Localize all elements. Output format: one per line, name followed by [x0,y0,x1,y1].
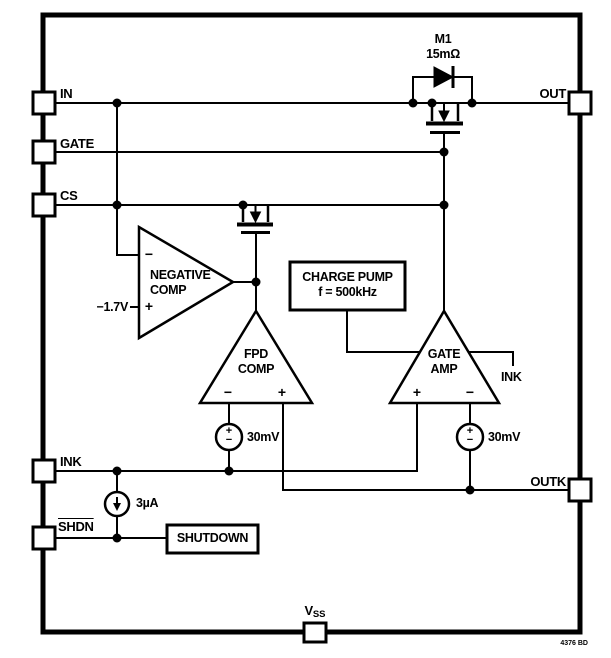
negative-comp-label: NEGATIVE COMP [150,268,211,298]
pin-cs-box [33,194,55,216]
pulldown-current-source-icon [105,492,129,516]
offset-source-right-symbol: + − [461,427,479,445]
ic-border [43,15,580,632]
charge-pump-label: CHARGE PUMP f = 500kHz [290,270,405,300]
pin-vss-label: VSS [285,604,345,621]
pulldown-current-label: 3µA [136,497,158,510]
m1-labels: M1 15mΩ [403,32,483,62]
negative-comp-minus-sign: − [142,247,156,261]
pin-ink-box [33,460,55,482]
pin-outk-box [569,479,591,501]
negative-comp-ref-label: −1.7V [76,301,128,314]
negative-comp-plus-sign: + [142,299,156,313]
gate-amp-label: GATE AMP [404,347,484,377]
gate-amp-plus-sign: + [410,385,424,399]
pin-out-label: OUT [506,87,566,100]
pin-out-box [569,92,591,114]
pin-outk-label: OUTK [486,475,566,488]
shutdown-label: SHUTDOWN [167,532,258,545]
offset-source-right-label: 30mV [488,431,520,444]
pin-shdn-label: SHDN [58,520,94,533]
pin-vss-box [304,623,326,642]
pin-in-box [33,92,55,114]
footer-code: 4376 BD [528,640,588,647]
gate-amp-minus-sign: − [463,385,477,399]
fpd-comp-minus-sign: − [221,385,235,399]
pin-shdn-box [33,527,55,549]
offset-source-left-label: 30mV [247,431,279,444]
fpd-comp-plus-sign: + [275,385,289,399]
m1-name: M1 [403,32,483,47]
offset-source-left-symbol: + − [220,427,238,445]
pin-gate-box [33,141,55,163]
m1-resistance: 15mΩ [403,47,483,62]
pin-in-label: IN [60,87,72,100]
fpd-comp-label: FPD COMP [216,347,296,377]
gate-amp-supply-label: INK [501,371,522,384]
pin-gate-label: GATE [60,137,94,150]
block-diagram: IN GATE CS INK SHDN OUT OUTK VSS M1 15mΩ… [0,0,611,658]
m1-body-diode-icon [434,66,453,88]
pin-ink-label: INK [60,455,82,468]
pin-cs-label: CS [60,189,77,202]
